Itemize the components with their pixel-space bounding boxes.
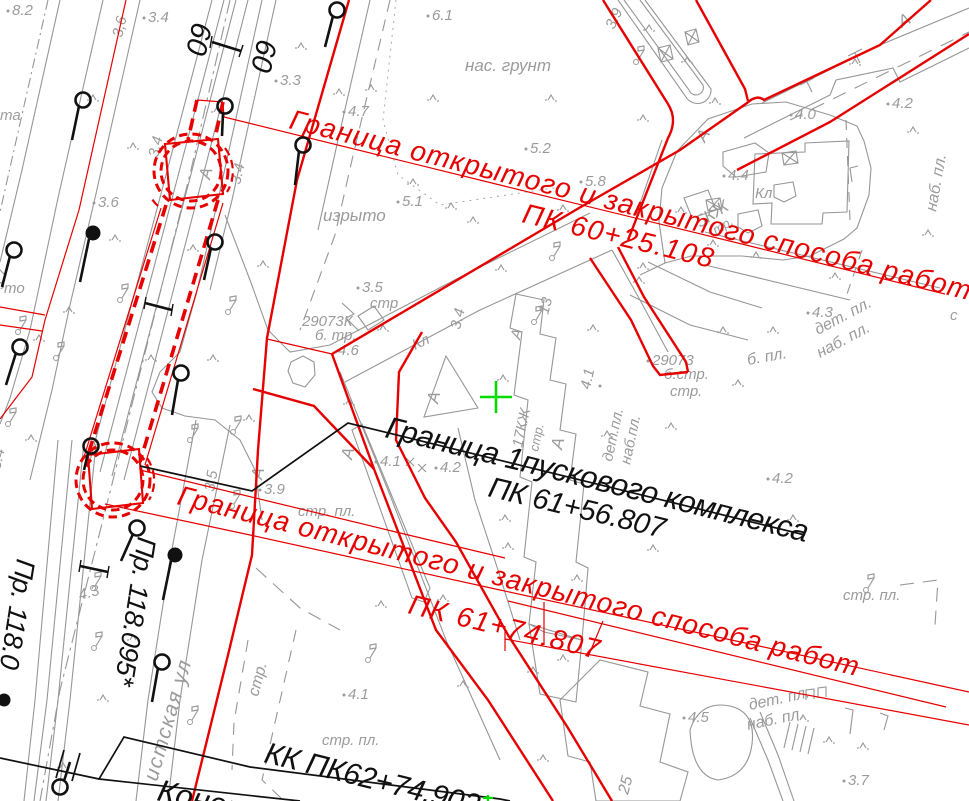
svg-text:5.1: 5.1 [402, 193, 423, 210]
svg-text:8.2: 8.2 [12, 2, 34, 19]
svg-text:та: та [0, 107, 21, 124]
svg-text:6.1: 6.1 [432, 7, 453, 24]
svg-text:изрыто: изрыто [323, 206, 386, 225]
svg-text:нас. грунт: нас. грунт [465, 56, 551, 75]
svg-text:с: с [950, 307, 958, 324]
svg-text:стр. пл.: стр. пл. [843, 587, 900, 604]
svg-text:3.9: 3.9 [264, 481, 286, 498]
svg-text:3.7: 3.7 [848, 772, 870, 789]
svg-text:стр: стр [370, 295, 398, 312]
svg-text:3.6: 3.6 [98, 194, 120, 211]
svg-text:стр. пл.: стр. пл. [322, 732, 379, 749]
svg-text:3.5: 3.5 [362, 279, 384, 296]
svg-text:4.2: 4.2 [772, 470, 794, 487]
svg-text:4.5: 4.5 [688, 709, 710, 726]
svg-text:4.2: 4.2 [892, 95, 914, 112]
svg-text:3.3: 3.3 [280, 72, 302, 89]
svg-text:Кл: Кл [755, 185, 773, 202]
svg-text:4.1: 4.1 [348, 686, 369, 703]
svg-text:4.0: 4.0 [795, 106, 817, 123]
svg-text:4.1: 4.1 [380, 453, 401, 470]
svg-text:стр.: стр. [670, 383, 702, 400]
svg-text:5.2: 5.2 [530, 140, 552, 157]
svg-text:3.4: 3.4 [148, 9, 169, 26]
